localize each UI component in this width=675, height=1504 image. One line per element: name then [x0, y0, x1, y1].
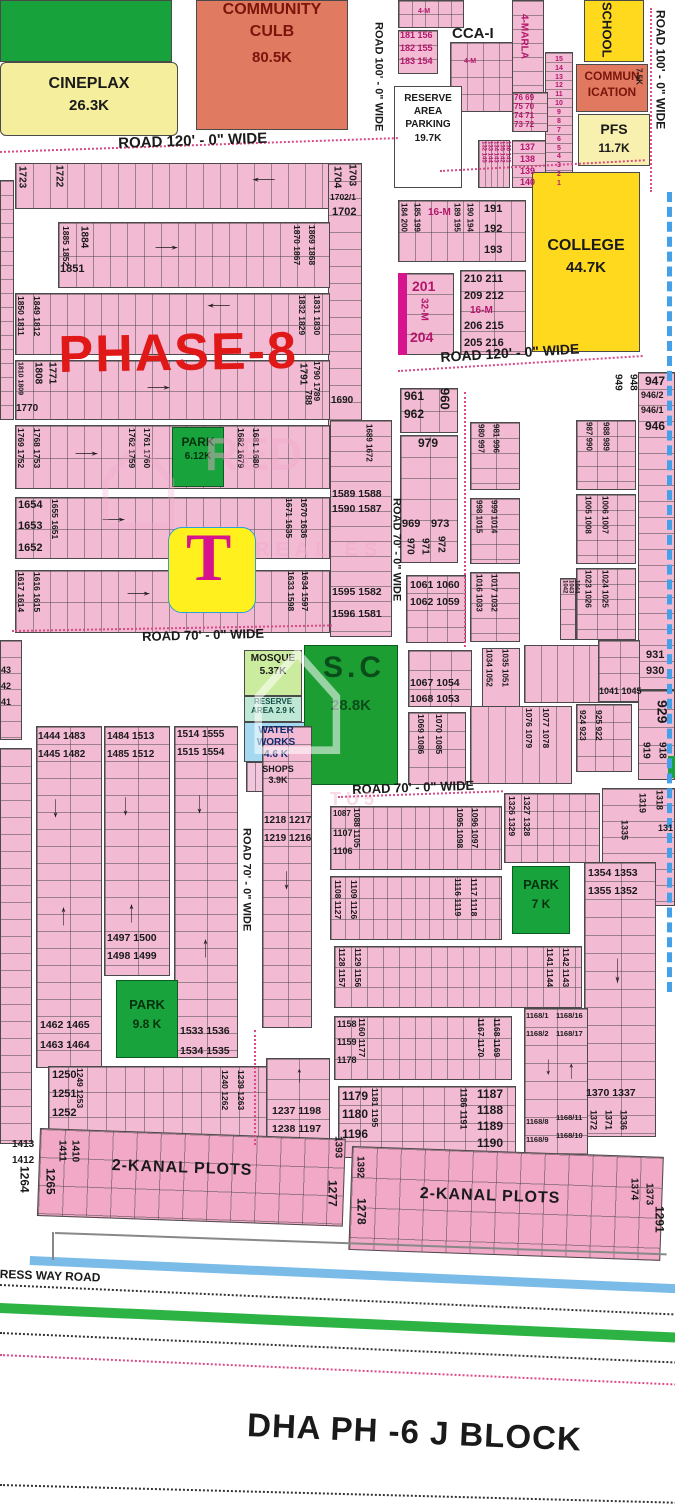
plot-number: 1771	[46, 362, 57, 402]
plot-number: 8	[549, 118, 569, 125]
plot-number: 1654	[18, 500, 42, 512]
plot-number: 1196	[342, 1128, 368, 1141]
plot-number: 946	[645, 420, 665, 433]
phase-title: PHASE-8	[58, 324, 298, 383]
plot-number: 1168/11	[556, 1114, 582, 1122]
plot-number: 981 996	[491, 424, 499, 486]
plot-number: 1160 1177	[357, 1018, 366, 1078]
plot-number: 972	[435, 536, 446, 562]
plot-number: 999 1014	[489, 500, 497, 562]
plot-number: 1249 1253	[75, 1068, 84, 1134]
direction-arrow: →	[148, 238, 186, 254]
road-dotted-line	[464, 392, 466, 647]
plot-number: 1355 1352	[588, 886, 638, 897]
plot-number: 42	[1, 682, 11, 691]
plot-number: 1702/1	[330, 193, 356, 202]
direction-arrow: ←	[200, 296, 238, 312]
plot-number: 1062 1059	[410, 597, 460, 608]
plot-number: 1178	[337, 1056, 357, 1065]
plot-number: 1005 1008	[583, 496, 591, 562]
plot-number: 1722	[53, 165, 64, 209]
watermark-text: RED	[205, 430, 302, 478]
plot-number: 10	[549, 100, 569, 107]
road-label-100-right: ROAD 100' - 0" WIDE	[654, 10, 667, 192]
plot-number: 1374	[628, 1178, 639, 1218]
cineplax-size: 26.3K	[10, 98, 168, 114]
left-edge-column	[0, 748, 32, 1144]
plot-number: 1515 1554	[177, 748, 224, 759]
bottom-dotted	[0, 1484, 675, 1504]
plot-number: 1240 1262	[220, 1070, 229, 1134]
plot-number: 1291	[653, 1206, 666, 1261]
plot-number: 1413	[12, 1140, 34, 1151]
school-label: SCHOOL	[600, 2, 614, 60]
direction-arrow: ↑	[60, 898, 67, 930]
plot-number: 139	[520, 167, 535, 176]
direction-arrow: ↓	[196, 786, 203, 818]
plot-number: 998 1015	[474, 500, 482, 562]
plot-number: 1723	[16, 166, 27, 210]
expressway-label: RESS WAY ROAD	[0, 1268, 101, 1284]
plot-number: 1168/8	[526, 1118, 549, 1126]
plot-number: 201	[412, 279, 435, 294]
plot-number: 1769 1752	[16, 428, 25, 486]
plot-number: 1159	[337, 1038, 357, 1047]
plot-number: 182 155	[400, 44, 433, 53]
watermark-house: ⌂	[90, 390, 187, 558]
plot-number: 1168 1169	[492, 1018, 501, 1078]
plot-number: 131	[658, 824, 673, 833]
communication-label: ICATION	[582, 86, 642, 99]
plot-number: 1129 1156	[353, 948, 362, 1006]
plot-number: 1885 1852	[61, 226, 70, 286]
plot-number: 1849 1812	[32, 296, 41, 352]
watermark-house: ⌂	[240, 590, 355, 790]
plot-number: 1141 1144	[545, 948, 554, 1006]
plot-number: 1831 1830	[312, 295, 321, 353]
plot-number: 190 194	[465, 203, 473, 259]
plot-number: 1393	[332, 1136, 343, 1174]
plot-number: 185 199	[412, 203, 420, 259]
plot-number: 1655 1651	[50, 499, 59, 557]
plot-number: 191	[484, 204, 502, 216]
plot-number: 1463 1464	[40, 1040, 90, 1051]
plot-row	[58, 222, 330, 288]
plot-number: 1108 1127	[333, 880, 342, 940]
plot-number: 1327 1328	[522, 796, 531, 858]
plot-number: 1251	[52, 1089, 76, 1101]
plot-number: 988 989	[601, 422, 609, 486]
plot-number: 1589 1588	[332, 489, 382, 500]
reserve-parking-label: RESERVE	[397, 94, 459, 105]
plot-number: 1095 1098	[455, 808, 464, 868]
plot-number: 1370 1337	[586, 1088, 636, 1099]
plot-number: 1318	[654, 790, 663, 826]
plot-number: 1250	[52, 1070, 76, 1082]
plot-number: 919	[640, 742, 651, 770]
t-logo-letter: T	[186, 522, 231, 593]
direction-arrow: ↓	[52, 790, 59, 822]
plot-number: 1372	[588, 1110, 597, 1142]
plot-number: 11	[549, 91, 569, 98]
cca1-label: CCA-I	[452, 26, 494, 42]
plot-number: 1277	[326, 1180, 339, 1230]
plot-block-1076	[470, 706, 572, 784]
road-label-100-left: ROAD 100' - 0" WIDE	[372, 22, 384, 194]
plot-number: 5	[549, 145, 569, 152]
plot-number: 971	[419, 538, 430, 564]
plot-number: 1484 1513	[107, 732, 154, 743]
road-dotted-line	[254, 1030, 256, 1145]
community-club-size: 80.5K	[200, 50, 344, 66]
plot-number: 1444 1483	[38, 732, 85, 743]
pfs-size: 11.7K	[586, 142, 642, 155]
plot-number: 1616 1615	[32, 572, 41, 630]
plot-number: 1498 1499	[107, 951, 157, 962]
road-label-70-vertical: ROAD 70' - 0" WIDE	[390, 498, 402, 646]
plot-number: 1106	[333, 847, 353, 856]
plot-number: 1168/9	[526, 1136, 549, 1144]
plot-number: 1851	[60, 264, 84, 276]
plot-number: 1869 1868	[307, 225, 316, 285]
plot-number: 1109 1126	[349, 880, 358, 940]
plot-number: 1168/2	[526, 1030, 549, 1038]
community-club-label: COMMUNITY	[200, 2, 344, 19]
direction-arrow: ↑	[128, 895, 135, 927]
plot-number: 962	[404, 408, 424, 421]
plot-number: 1590 1587	[332, 504, 382, 515]
plot-number: 136 141	[504, 141, 510, 187]
expressway-boundary	[52, 1232, 54, 1260]
plot-number: 1077 1078	[541, 708, 550, 780]
plot-number: 1514 1555	[177, 730, 224, 741]
magenta-stripe	[398, 273, 407, 355]
plot-number: 1167 1170	[476, 1018, 485, 1078]
plot-number: 15	[549, 56, 569, 63]
plot-number: 1690	[331, 396, 353, 407]
plot-number: 1	[549, 180, 569, 187]
plot-number: 929	[655, 700, 670, 740]
plot-column-b3	[174, 726, 238, 1058]
plot-number: 12	[549, 82, 569, 89]
direction-arrow: →	[120, 584, 158, 600]
plot-number: 1534 1535	[180, 1046, 230, 1057]
plot-number: 1354 1353	[588, 868, 638, 879]
plot-number: 206 215	[464, 321, 504, 333]
plot-number: 1186 1191	[458, 1088, 467, 1154]
plot-number: 1265	[44, 1168, 57, 1216]
plot-number: 969	[402, 519, 420, 531]
left-edge-column	[0, 180, 14, 420]
plot-number: 1790 1789	[312, 361, 321, 417]
phase-8-plot-map: CINEPLAX26.3KCOMMUNITYCULB80.5KCCA-I181 …	[0, 0, 675, 1500]
plot-number: 1770	[16, 404, 38, 415]
plot-number: 41	[1, 698, 11, 707]
plot-number: 1373	[643, 1183, 654, 1223]
watermark-text: REAL ES	[255, 540, 383, 561]
plot-block-1326	[504, 793, 600, 863]
plot-number: 205 216	[464, 338, 504, 350]
plot-number: 1087	[333, 810, 351, 818]
plot-number: 14	[549, 65, 569, 72]
plot-number: 1142 1143	[561, 948, 570, 1006]
footer-block-label: DHA PH -6 J BLOCK	[246, 1408, 582, 1457]
plot-number: 948	[627, 374, 638, 414]
plot-number: 209 212	[464, 291, 504, 303]
plot-number: 3	[549, 162, 569, 169]
plot-number: 210 211	[464, 274, 503, 286]
plot-number: 1168/17	[556, 1030, 583, 1038]
plot-number: 1850 1811	[16, 296, 25, 352]
plot-number: 1326 1329	[507, 796, 516, 858]
plot-number: 1168/16	[556, 1012, 583, 1020]
plot-number: 1189	[477, 1120, 503, 1133]
plot-number: 1884	[78, 226, 89, 266]
plot-number: 4	[549, 153, 569, 160]
direction-arrow: ↓	[122, 788, 129, 820]
reserve-parking-label: AREA	[397, 107, 459, 118]
plot-number: 1702	[332, 207, 356, 219]
plot-number: 1278	[355, 1198, 368, 1248]
communication-label: COMMUN	[582, 70, 642, 83]
green-area	[0, 0, 172, 62]
cineplax-label: CINEPLAX	[10, 76, 168, 93]
plot-number: 973	[431, 519, 449, 531]
plot-number: 1088 1105	[352, 808, 361, 866]
reserve-parking-size: 19.7K	[397, 134, 459, 145]
plot-number: 1870 1867	[292, 225, 301, 285]
plot-number: 1070 1085	[434, 714, 443, 784]
plot-number: 1067 1054	[410, 678, 460, 689]
plot-number: 140	[520, 178, 535, 187]
plot-number: 1252	[52, 1108, 76, 1120]
plot-number: 1024 1025	[600, 570, 608, 638]
boundary-blue-dashed	[667, 192, 672, 992]
plot-number: 1617 1614	[16, 572, 25, 630]
plot-number: 1412	[12, 1156, 34, 1167]
plot-number: 918	[656, 742, 667, 770]
plot-grid	[398, 0, 464, 28]
plot-number: 1069 1086	[416, 714, 425, 784]
plot-number: 788	[303, 390, 312, 416]
plot-number: 1034 1052	[484, 649, 492, 707]
direction-arrow: ↓	[614, 946, 621, 990]
plot-number: 1689 1672	[364, 424, 372, 484]
plot-number: 949	[612, 374, 623, 414]
watermark-text: T U 5	[330, 790, 374, 809]
plot-number: 6	[549, 136, 569, 143]
plot-number: 979	[418, 437, 438, 450]
plot-number: 193	[484, 245, 502, 257]
pfs-label: PFS	[588, 122, 640, 137]
plot-number: 1076 1079	[524, 708, 533, 780]
plot-number: 1044	[573, 580, 579, 608]
park-size: 9.8 K	[122, 1018, 172, 1031]
direction-arrow: ←	[245, 170, 283, 186]
plot-number: 1410	[69, 1140, 80, 1182]
plot-number: 1336	[618, 1110, 627, 1142]
plot-number: 1006 1007	[600, 496, 608, 562]
road-label-70-vertical: ROAD 70' - 0" WIDE	[240, 828, 252, 993]
plot-number: 1016 1033	[474, 574, 482, 640]
plot-number: 137	[520, 143, 535, 152]
plot-number: 1264	[18, 1166, 31, 1214]
plot-number: 924 923	[578, 710, 587, 770]
plot-number: 1187	[477, 1088, 503, 1101]
communication-size: 7.5K	[634, 68, 642, 106]
plot-number: 7	[549, 127, 569, 134]
plot-number: 4-M	[464, 58, 476, 65]
plot-number: 1179	[342, 1090, 368, 1103]
plot-number: 1068 1053	[410, 694, 460, 705]
park-size: 7 K	[516, 898, 566, 911]
plot-number: 970	[404, 538, 415, 564]
plot-number: 946/2	[641, 391, 664, 400]
college-size: 44.7K	[536, 260, 636, 276]
plot-number: 1832 1829	[297, 295, 306, 353]
plot-number: 1218 1217	[264, 816, 311, 827]
road-dotted-line	[650, 8, 652, 192]
plot-number: 1181 1195	[370, 1088, 379, 1152]
plot-number: 1041 1045	[599, 687, 642, 696]
plot-number: 925 922	[594, 710, 603, 770]
park-label: PARK	[516, 878, 566, 892]
plot-number: 1107	[333, 829, 353, 838]
plot-number: 1116 1119	[453, 878, 462, 938]
community-club-label: CULB	[200, 24, 344, 41]
plot-number: 1653	[18, 521, 42, 533]
direction-arrow: ↓	[283, 862, 290, 894]
plot-number: 16-M	[428, 208, 451, 219]
plot-number: 1190	[477, 1137, 503, 1150]
plot-number: 138	[520, 155, 535, 164]
direction-arrow: ↓	[545, 1052, 552, 1079]
plot-number: 1319	[637, 793, 646, 825]
road-label-120: ROAD 120' - 0" WIDE	[118, 131, 268, 152]
plot-number: 1035 1051	[500, 649, 508, 707]
plot-number: 961	[404, 390, 424, 403]
plot-number: 1023 1026	[583, 570, 591, 638]
plot-number: 4-M	[418, 8, 430, 15]
plot-number: 16-M	[470, 306, 493, 317]
plot-number: 1371	[603, 1110, 612, 1142]
plot-number: 181 156	[400, 31, 433, 40]
plot-number: 987 990	[584, 422, 592, 486]
plot-column-b1	[36, 726, 102, 1068]
plot-number: 1808	[32, 362, 43, 402]
plot-number: 1017 1032	[489, 574, 497, 640]
plot-number: 13	[549, 74, 569, 81]
park-label: PARK	[122, 998, 172, 1012]
plot-number: 1335	[619, 820, 628, 852]
plot-number: 930	[646, 666, 664, 678]
direction-arrow: ↑	[568, 1056, 575, 1083]
expressway-blue-stripe	[30, 1256, 675, 1293]
plot-number: 2	[549, 171, 569, 178]
plot-number: 947	[645, 375, 665, 388]
plot-number: 43	[1, 666, 11, 675]
reserve-parking-label: PARKING	[397, 120, 459, 131]
plot-number: 1485 1512	[107, 750, 154, 761]
plot-number: 204	[410, 330, 433, 345]
plot-number: 1180	[342, 1108, 368, 1121]
direction-arrow: ↑	[296, 1062, 303, 1087]
plot-number: 960	[438, 388, 452, 432]
plot-number: 980 997	[476, 424, 484, 486]
plot-number: 1096 1097	[470, 808, 479, 868]
plot-number: 73 72	[514, 121, 534, 129]
plot-number: 9	[549, 109, 569, 116]
plot-number: 1497 1500	[107, 933, 157, 944]
plot-number: 1533 1536	[180, 1026, 230, 1037]
plot-number: 1128 1157	[337, 948, 346, 1006]
plot-number: 1061 1060	[410, 580, 460, 591]
plot-number: 1237 1198	[272, 1106, 321, 1117]
plot-number: 1168/1	[526, 1012, 549, 1020]
plot-number: 189 195	[452, 203, 460, 259]
plot-number: 1462 1465	[40, 1020, 90, 1031]
plot-number: 1168/10	[556, 1132, 583, 1140]
plot-number: 184 200	[399, 203, 407, 259]
plot-number: 1158	[337, 1020, 357, 1029]
plot-number: 1238 1197	[272, 1124, 321, 1135]
direction-arrow: ↑	[202, 930, 209, 962]
plot-number: 946/1	[641, 406, 664, 415]
plot-number: 192	[484, 224, 502, 236]
plot-row	[15, 163, 360, 209]
plot-number: 1239 1263	[236, 1070, 245, 1134]
college-label: COLLEGE	[536, 238, 636, 255]
plot-number: 931	[646, 650, 664, 662]
plot-number: 1188	[477, 1104, 503, 1117]
plot-number: 1117 1118	[469, 878, 478, 938]
plot-number: 1219 1216	[264, 834, 311, 845]
plot-number: 183 154	[400, 57, 433, 66]
plot-number: 1652	[18, 543, 42, 555]
plot-number: 1445 1482	[38, 750, 85, 761]
plot-number: 1392	[354, 1156, 365, 1196]
plot-number: 1768 1753	[32, 428, 41, 486]
